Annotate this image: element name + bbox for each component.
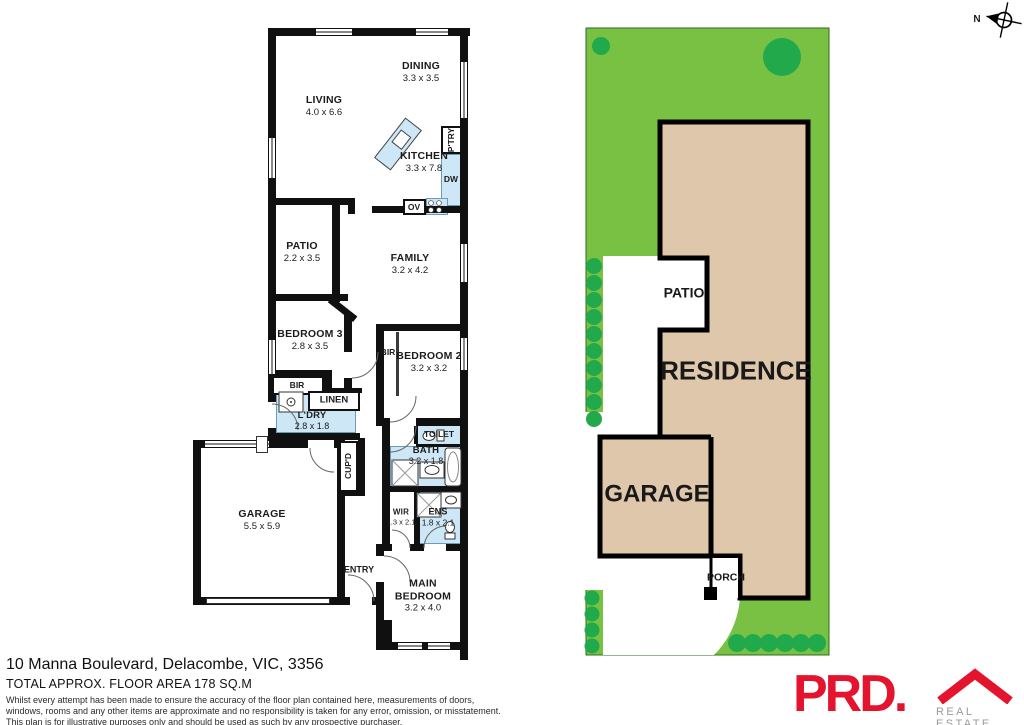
room-label-dining: DINING3.3 x 3.5: [402, 60, 440, 84]
prd-logo: PRD. REAL ESTATE: [793, 666, 1019, 722]
prd-roof-icon: [935, 668, 1015, 704]
room-label-ens: ENS1.8 x 2.1: [422, 507, 455, 528]
room-label-kitchen: KITCHEN3.3 x 7.8: [400, 150, 448, 174]
disclaimer-line-2: windows, rooms and any other items are a…: [6, 706, 646, 717]
room-label-living: LIVING4.0 x 6.6: [306, 94, 342, 118]
label-toilet: TOILET: [424, 429, 454, 439]
label-pantry: P'TRY: [446, 128, 456, 152]
prd-tagline: REAL ESTATE: [936, 706, 1019, 725]
site-label-garage: GARAGE: [604, 481, 709, 510]
room-label-patio: PATIO2.2 x 3.5: [284, 240, 320, 264]
compass-icon: [984, 1, 1024, 41]
room-label-laundry: L'DRY2.8 x 1.8: [295, 410, 330, 432]
disclaimer-line-3: This plan is for illustrative purposes o…: [6, 717, 646, 725]
room-label-bedroom3: BEDROOM 32.8 x 3.5: [277, 328, 342, 352]
room-label-wir: WIR1.3 x 2.1: [387, 508, 416, 527]
site-plan: [580, 24, 836, 660]
site-label-patio: PATIO: [664, 285, 705, 302]
site-label-residence: RESIDENCE: [660, 355, 812, 386]
room-label-bedroom2: BEDROOM 23.2 x 3.2: [396, 350, 461, 374]
prd-logo-text: PRD.: [793, 668, 905, 720]
room-label-bath: BATH3.2 x 1.8: [409, 445, 444, 467]
room-label-family: FAMILY3.2 x 4.2: [391, 252, 430, 276]
room-label-garage: GARAGE5.5 x 5.9: [238, 508, 285, 532]
disclaimer-text: Whilst every attempt has been made to en…: [6, 695, 646, 725]
site-label-porch: PORCH: [707, 572, 745, 585]
label-bir-bed3: BIR: [290, 380, 305, 390]
disclaimer-line-1: Whilst every attempt has been made to en…: [6, 695, 646, 706]
label-bir-bed2: BIR: [381, 347, 396, 357]
label-dishwasher: DW: [444, 174, 458, 184]
compass-north-label: N: [973, 14, 980, 26]
room-label-main-bedroom: MAIN BEDROOM3.2 x 4.0: [387, 578, 459, 615]
property-address: 10 Manna Boulevard, Delacombe, VIC, 3356: [6, 656, 646, 674]
label-linen: LINEN: [320, 394, 349, 405]
label-cupboard: CUP'D: [343, 453, 353, 479]
floorplan-page: LIVING4.0 x 6.6 DINING3.3 x 3.5 KITCHEN3…: [0, 0, 1024, 725]
label-entry: ENTRY: [344, 565, 374, 576]
floor-plan: LIVING4.0 x 6.6 DINING3.3 x 3.5 KITCHEN3…: [0, 0, 512, 665]
label-oven: OV: [408, 202, 420, 212]
floor-area-text: TOTAL APPROX. FLOOR AREA 178 SQ.M: [6, 677, 646, 691]
footer: 10 Manna Boulevard, Delacombe, VIC, 3356…: [6, 656, 646, 725]
